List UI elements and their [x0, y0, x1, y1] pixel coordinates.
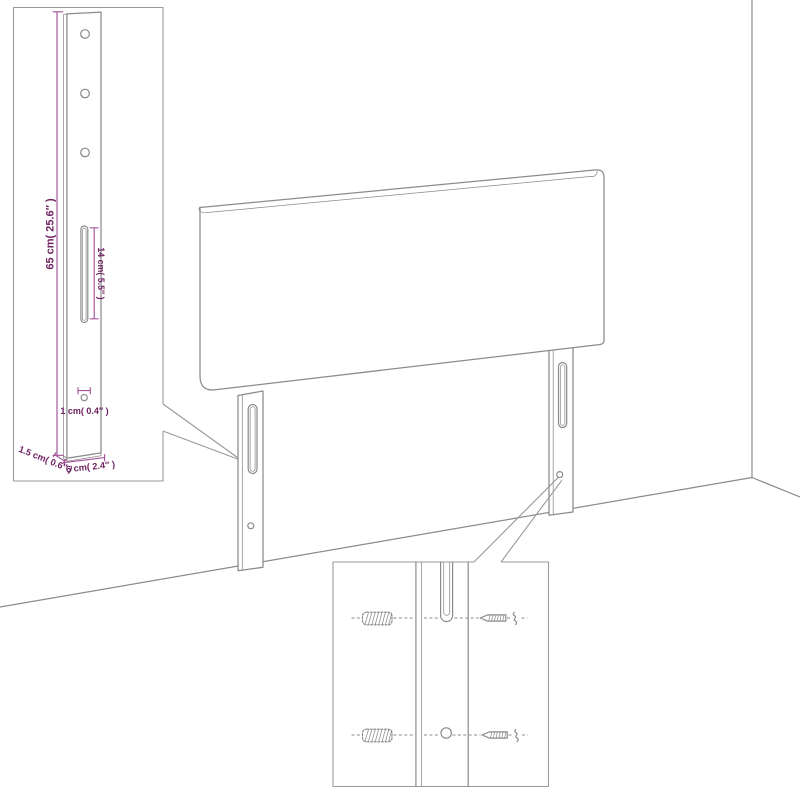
- leg-detail-slot-inner: [444, 562, 450, 615]
- inset-bracket-side-view: 65 cm( 25.6″ ) 14 cm( 5.5″ ) 1 cm( 0.4″ …: [14, 8, 164, 482]
- wall-plug-bottom: [363, 729, 393, 742]
- screw-threads: [491, 732, 506, 738]
- callout-bottom-line-right: [501, 480, 562, 562]
- dim-hole-label: 1 cm( 0.4″ ): [60, 406, 108, 416]
- screw-threads: [489, 615, 504, 621]
- screw-top: [480, 612, 516, 624]
- callout-left-leg: [163, 404, 238, 459]
- dim-slot-label: 14 cm( 5.5″ ): [96, 247, 106, 299]
- callout-left-line-lower: [163, 431, 238, 459]
- right-leg-body: [549, 346, 573, 515]
- headboard-panel: [199, 170, 604, 390]
- inset-mounting-detail: [333, 562, 549, 787]
- alignment-guide-lines: [352, 618, 529, 735]
- leg-detail-hole: [441, 728, 451, 738]
- left-leg-body: [238, 391, 263, 571]
- dim-height-label: 65 cm( 25.6″ ): [44, 198, 56, 270]
- callout-bottom-line-left: [474, 477, 558, 562]
- callout-left-line-upper: [163, 404, 238, 458]
- leg-detail-drawing: [416, 562, 468, 787]
- screw-head-swirl: [513, 612, 516, 624]
- headboard-dimension-diagram: 65 cm( 25.6″ ) 14 cm( 5.5″ ) 1 cm( 0.4″ …: [0, 0, 800, 800]
- screw-head-swirl: [515, 729, 518, 741]
- headboard-right-leg: [549, 346, 573, 515]
- screw-bottom: [482, 729, 518, 741]
- wall-plug-ribs: [365, 612, 392, 624]
- floor-wall-line-left: [0, 478, 752, 608]
- wall-plug-top: [363, 612, 393, 625]
- bracket-drawing: [63, 12, 101, 461]
- headboard-outline: [200, 170, 604, 390]
- wall-plug-ribs: [365, 729, 392, 741]
- leg-detail-slot: [441, 562, 453, 622]
- floor-wall-line-right: [752, 478, 800, 498]
- diagram-canvas: 65 cm( 25.6″ ) 14 cm( 5.5″ ) 1 cm( 0.4″ …: [0, 0, 800, 800]
- bracket-front-face: [67, 12, 101, 458]
- headboard-left-leg: [238, 391, 263, 571]
